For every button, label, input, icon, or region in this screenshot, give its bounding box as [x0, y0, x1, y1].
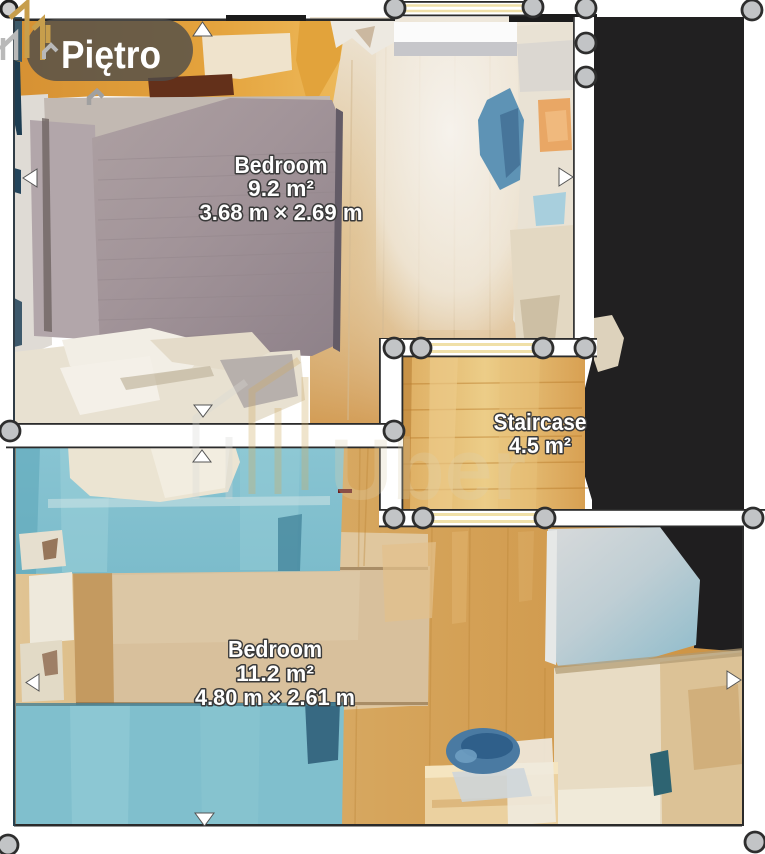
- svg-text:Bedroom: Bedroom: [235, 152, 328, 178]
- svg-text:11.2 m²: 11.2 m²: [236, 661, 314, 686]
- svg-text:4.80 m × 2.61 m: 4.80 m × 2.61 m: [195, 685, 355, 710]
- svg-text:Staircase: Staircase: [494, 409, 587, 435]
- svg-text:9.2 m²: 9.2 m²: [248, 176, 314, 201]
- svg-text:Piętro: Piętro: [61, 34, 161, 77]
- svg-text:Uber: Uber: [330, 422, 526, 518]
- svg-text:Bedroom: Bedroom: [228, 636, 322, 662]
- svg-text:4.5 m²: 4.5 m²: [509, 433, 571, 458]
- svg-text:3.68 m × 2.69 m: 3.68 m × 2.69 m: [200, 200, 363, 225]
